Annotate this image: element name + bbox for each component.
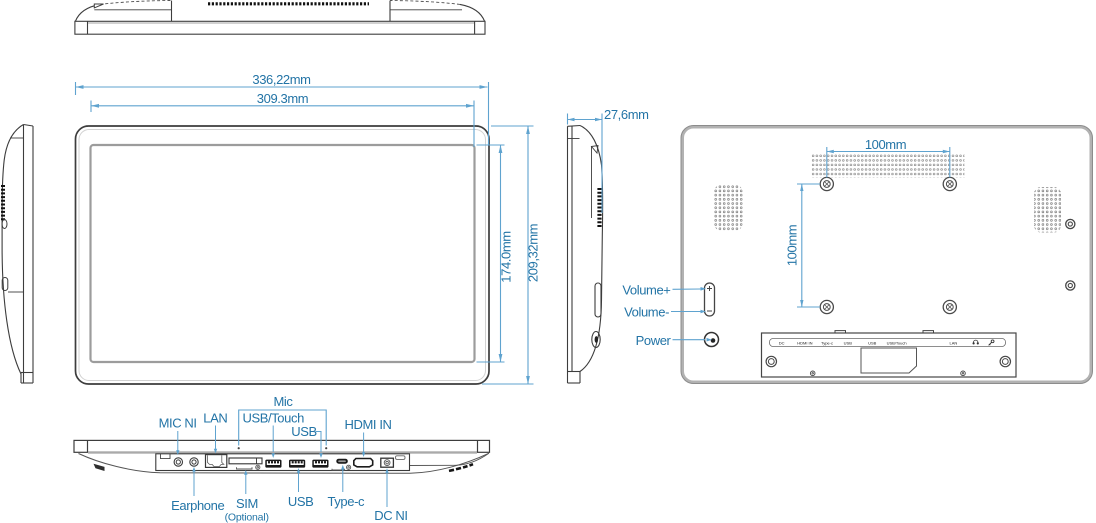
svg-text:MIC NI: MIC NI	[159, 416, 197, 431]
svg-text:336,22mm: 336,22mm	[252, 72, 310, 87]
svg-text:Type-c: Type-c	[327, 494, 365, 509]
svg-text:USB: USB	[868, 340, 877, 345]
svg-text:USB: USB	[288, 494, 314, 509]
svg-text:LAN: LAN	[950, 340, 958, 345]
svg-text:27,6mm: 27,6mm	[604, 107, 649, 122]
svg-text:309.3mm: 309.3mm	[257, 91, 308, 106]
svg-text:(Optional): (Optional)	[225, 512, 269, 523]
svg-text:USB: USB	[291, 424, 317, 439]
svg-text:Earphone: Earphone	[171, 498, 224, 513]
svg-text:100mm: 100mm	[785, 225, 800, 266]
svg-text:Type-c: Type-c	[821, 340, 833, 345]
svg-text:USB/Touch: USB/Touch	[887, 340, 907, 345]
svg-text:DC: DC	[779, 340, 785, 345]
svg-text:LAN: LAN	[203, 410, 227, 425]
svg-text:HDMI IN: HDMI IN	[344, 417, 391, 432]
svg-text:USB: USB	[844, 340, 853, 345]
svg-text:Volume-: Volume-	[624, 305, 669, 320]
svg-text:Mic: Mic	[273, 394, 293, 409]
svg-text:174.0mm: 174.0mm	[499, 231, 514, 282]
svg-text:HDMI IN: HDMI IN	[797, 340, 812, 345]
svg-text:209,32mm: 209,32mm	[526, 224, 541, 282]
svg-text:Volume+: Volume+	[622, 283, 670, 298]
svg-text:SIM: SIM	[236, 496, 258, 511]
svg-text:Power: Power	[636, 333, 672, 348]
svg-text:DC NI: DC NI	[374, 508, 407, 523]
svg-text:100mm: 100mm	[865, 137, 906, 152]
